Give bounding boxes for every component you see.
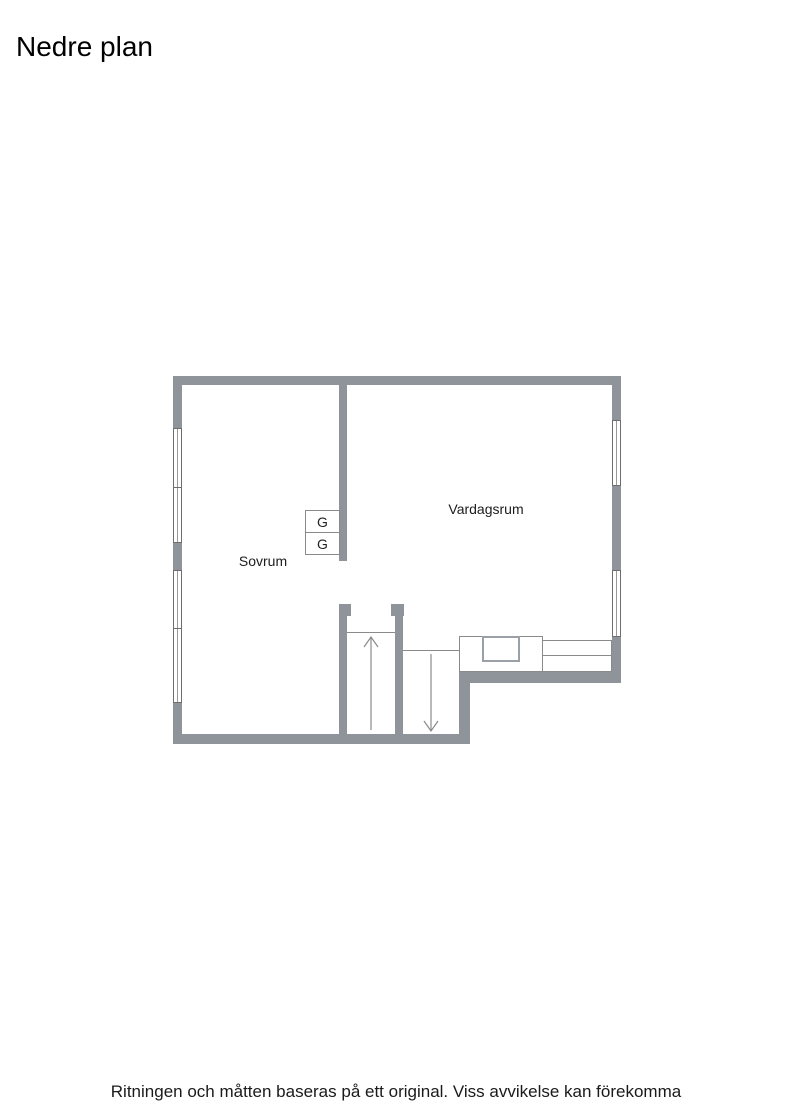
- window: [612, 420, 621, 486]
- window-glass-line: [616, 421, 617, 485]
- closet-box: G: [305, 532, 340, 555]
- floorplan-page: Nedre plan: [0, 0, 792, 1120]
- page-title: Nedre plan: [16, 32, 153, 63]
- closet-label: G: [317, 536, 328, 552]
- counter-edge-line: [542, 655, 612, 656]
- closet-box: G: [305, 510, 340, 533]
- stair-landing-line: [403, 650, 459, 651]
- window: [173, 628, 182, 703]
- window-glass-line: [177, 488, 178, 542]
- stair-wall-left: [339, 604, 347, 734]
- kitchen-counter: [542, 640, 612, 672]
- window: [173, 428, 182, 488]
- stove: [482, 636, 520, 662]
- room-label-vardagsrum: Vardagsrum: [426, 501, 546, 517]
- disclaimer-text: Ritningen och måtten baseras på ett orig…: [0, 1082, 792, 1102]
- room-label-sovrum: Sovrum: [203, 553, 323, 569]
- stairs-up-arrow-icon: [362, 634, 380, 732]
- stairs-down-arrow-icon: [422, 652, 440, 734]
- interior-wall: [339, 385, 347, 561]
- outer-wall-right: [612, 376, 621, 420]
- outer-wall-left: [173, 376, 182, 428]
- window-glass-line: [616, 571, 617, 636]
- outer-wall-right: [612, 485, 621, 570]
- window-glass-line: [177, 629, 178, 702]
- window-glass-line: [177, 429, 178, 487]
- stair-landing-line: [347, 632, 395, 633]
- window: [612, 570, 621, 637]
- stair-wall-right-jamb: [391, 604, 404, 616]
- window-glass-line: [177, 571, 178, 628]
- outer-wall-top: [173, 376, 621, 385]
- outer-wall-bottom-right: [459, 672, 621, 683]
- window: [173, 487, 182, 543]
- outer-wall-bottom-left: [173, 734, 470, 744]
- stair-wall-left-jamb: [339, 604, 351, 616]
- window: [173, 570, 182, 629]
- outer-wall-left: [173, 543, 182, 570]
- closet-label: G: [317, 514, 328, 530]
- stair-wall-right: [395, 604, 403, 734]
